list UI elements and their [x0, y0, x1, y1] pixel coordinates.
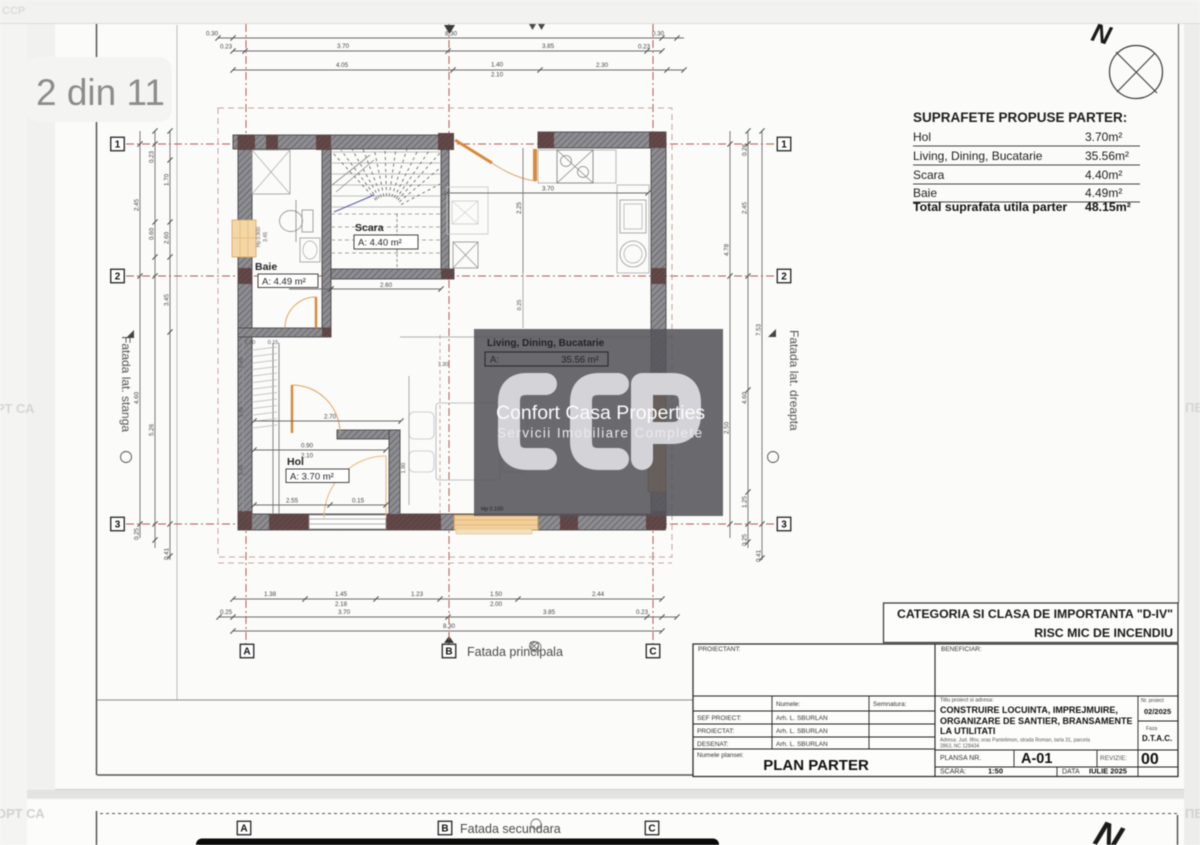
svg-text:Baie: Baie [255, 261, 277, 273]
svg-text:3.45: 3.45 [263, 232, 269, 242]
svg-text:3.70: 3.70 [338, 609, 351, 616]
svg-text:ПЕ: ПЕ [1185, 400, 1200, 415]
svg-text:SEF PROIECT:: SEF PROIECT: [697, 715, 742, 722]
svg-text:3.70: 3.70 [337, 43, 350, 50]
svg-text:C: C [648, 824, 655, 835]
svg-text:Hol: Hol [287, 456, 304, 468]
svg-text:4.49m²: 4.49m² [1085, 186, 1122, 200]
svg-text:A-01: A-01 [1021, 751, 1052, 767]
svg-text:0.23: 0.23 [638, 44, 651, 51]
svg-text:2: 2 [781, 272, 787, 283]
svg-text:A: A [240, 824, 247, 835]
svg-text:8.30: 8.30 [445, 31, 458, 38]
svg-text:0.23: 0.23 [220, 44, 233, 51]
svg-text:SCARA:: SCARA: [940, 769, 966, 776]
svg-text:2.18: 2.18 [335, 601, 348, 608]
svg-text:Hol: Hol [913, 130, 931, 144]
svg-text:A:: A: [490, 355, 499, 366]
svg-text:1.85: 1.85 [239, 407, 245, 418]
svg-text:Numele plansei:: Numele plansei: [697, 752, 744, 759]
svg-text:1: 1 [781, 140, 787, 151]
svg-text:Scara: Scara [355, 222, 384, 234]
svg-text:4.78: 4.78 [724, 243, 731, 256]
svg-text:0.15: 0.15 [352, 498, 365, 505]
svg-text:2863, NC 128434: 2863, NC 128434 [940, 744, 979, 750]
svg-text:0.30: 0.30 [652, 31, 665, 38]
svg-text:Living, Dining, Bucatarie: Living, Dining, Bucatarie [913, 149, 1043, 163]
svg-text:RISC MIC DE INCENDIU: RISC MIC DE INCENDIU [1034, 626, 1173, 640]
svg-text:CCP: CCP [2, 5, 25, 17]
svg-text:2.00: 2.00 [490, 601, 503, 608]
svg-text:CONSTRUIRE LOCUINTA, IMPREJMUI: CONSTRUIRE LOCUINTA, IMPREJMUIRE, [940, 705, 1118, 715]
svg-text:IULIE 2025: IULIE 2025 [1089, 767, 1127, 776]
svg-text:1.30: 1.30 [245, 340, 256, 346]
svg-text:LA UTILITATI: LA UTILITATI [940, 726, 995, 736]
svg-text:2.10: 2.10 [491, 72, 504, 79]
svg-text:REVIZIE:: REVIZIE: [1100, 755, 1127, 762]
svg-text:1.80: 1.80 [401, 463, 407, 474]
svg-text:00: 00 [1141, 751, 1159, 768]
svg-text:Hp 0.900: Hp 0.900 [256, 227, 262, 248]
svg-text:Arh. L. SBURLAN: Arh. L. SBURLAN [776, 728, 828, 735]
svg-text:ОРТ СА: ОРТ СА [0, 806, 45, 821]
svg-text:0.26: 0.26 [742, 143, 749, 156]
svg-text:PLAN PARTER: PLAN PARTER [763, 757, 869, 774]
svg-text:1.23: 1.23 [411, 591, 424, 598]
svg-text:02/2025: 02/2025 [1144, 707, 1171, 716]
svg-text:2.45: 2.45 [134, 198, 141, 211]
svg-text:3.85: 3.85 [542, 43, 555, 50]
svg-text:A: 3.70 m²: A: 3.70 m² [290, 472, 334, 483]
svg-text:Faza: Faza [1146, 726, 1157, 732]
svg-text:3.70: 3.70 [542, 186, 555, 193]
svg-text:A: A [243, 647, 250, 658]
svg-text:A: 4.49 m²: A: 4.49 m² [262, 277, 306, 288]
svg-text:SUPRAFETE PROPUSE PARTER:: SUPRAFETE PROPUSE PARTER: [913, 110, 1127, 125]
svg-text:2.60: 2.60 [380, 282, 393, 289]
svg-text:4.60: 4.60 [134, 391, 141, 404]
svg-text:РТ СА: РТ СА [0, 401, 35, 416]
svg-text:Confort Casa Properties: Confort Casa Properties [496, 402, 705, 424]
svg-text:Semnatura:: Semnatura: [873, 701, 907, 708]
svg-text:B: B [441, 824, 448, 835]
svg-text:3.45: 3.45 [164, 293, 171, 306]
svg-text:7.53: 7.53 [756, 323, 763, 336]
svg-text:4.05: 4.05 [336, 62, 349, 69]
svg-text:Titlu proiect si adresa:: Titlu proiect si adresa: [940, 698, 994, 704]
svg-text:2.44: 2.44 [592, 591, 605, 598]
svg-text:1: 1 [115, 140, 121, 151]
svg-text:1.70: 1.70 [164, 173, 171, 186]
svg-text:ПЕ: ПЕ [1185, 806, 1200, 821]
svg-text:0.25: 0.25 [742, 533, 749, 546]
svg-text:2.55: 2.55 [286, 498, 299, 505]
svg-text:0.30: 0.30 [206, 31, 219, 38]
svg-text:1.50: 1.50 [490, 591, 503, 598]
svg-text:0.25: 0.25 [220, 609, 233, 616]
svg-text:0.23: 0.23 [149, 150, 156, 163]
svg-text:2.25: 2.25 [517, 202, 523, 214]
svg-text:0.25: 0.25 [517, 300, 523, 311]
svg-text:2 din 11: 2 din 11 [36, 72, 165, 113]
svg-text:35.56 m²: 35.56 m² [561, 355, 599, 366]
svg-text:Fatada lat. dreapta: Fatada lat. dreapta [787, 330, 801, 431]
svg-text:0.90: 0.90 [301, 443, 314, 450]
svg-text:BENEFICIAR:: BENEFICIAR: [941, 646, 982, 653]
svg-text:48.15m²: 48.15m² [1085, 200, 1131, 214]
svg-text:DESENAT:: DESENAT: [697, 741, 728, 748]
svg-text:0.41: 0.41 [756, 549, 763, 562]
svg-text:Arh. L. SBURLAN: Arh. L. SBURLAN [776, 715, 828, 722]
svg-text:2.50: 2.50 [724, 421, 731, 434]
svg-text:1.45: 1.45 [335, 591, 348, 598]
svg-text:4.60: 4.60 [742, 391, 749, 404]
svg-text:Fatada secundara: Fatada secundara [460, 822, 561, 836]
svg-text:Fatada principala: Fatada principala [467, 645, 563, 659]
svg-text:3: 3 [115, 520, 121, 531]
svg-text:3.70m²: 3.70m² [1085, 130, 1122, 144]
svg-text:1.25: 1.25 [742, 495, 749, 508]
svg-text:B: B [445, 647, 452, 658]
svg-text:D.T.A.C.: D.T.A.C. [1142, 734, 1172, 743]
svg-text:0.23: 0.23 [636, 609, 649, 616]
svg-text:2.30: 2.30 [596, 62, 609, 69]
svg-text:1.40: 1.40 [491, 62, 504, 69]
svg-text:2: 2 [115, 272, 121, 283]
svg-text:Nr. proiect: Nr. proiect [1141, 698, 1164, 704]
svg-text:3: 3 [781, 520, 787, 531]
svg-text:Numele:: Numele: [776, 701, 800, 708]
svg-text:ORGANIZARE DE SANTIER, BRANSAM: ORGANIZARE DE SANTIER, BRANSAMENTE [940, 716, 1133, 726]
svg-text:4.40m²: 4.40m² [1085, 168, 1122, 182]
svg-text:35.56m²: 35.56m² [1085, 149, 1129, 163]
svg-text:3.85: 3.85 [543, 609, 556, 616]
svg-text:2.60: 2.60 [164, 231, 171, 244]
svg-text:Total suprafata utila parter: Total suprafata utila parter [913, 200, 1067, 214]
svg-text:Baie: Baie [913, 186, 937, 200]
svg-text:DATA: DATA [1062, 769, 1080, 776]
svg-text:0.25: 0.25 [134, 527, 141, 540]
svg-text:1:50: 1:50 [988, 767, 1003, 776]
svg-text:Hp 0.100: Hp 0.100 [481, 507, 503, 513]
svg-text:1.38: 1.38 [264, 591, 277, 598]
svg-text:C: C [649, 647, 656, 658]
svg-text:7.30: 7.30 [438, 362, 449, 368]
svg-text:2.70: 2.70 [324, 414, 337, 421]
svg-text:0.60: 0.60 [149, 227, 156, 240]
svg-text:PROIECTAT:: PROIECTAT: [697, 728, 735, 735]
svg-text:Living, Dining, Bucatarie: Living, Dining, Bucatarie [487, 338, 605, 349]
svg-text:PLANSA NR.: PLANSA NR. [940, 755, 981, 762]
svg-text:0.15: 0.15 [268, 340, 279, 346]
svg-text:Fatada lat. stanga: Fatada lat. stanga [119, 336, 133, 432]
svg-text:0.41: 0.41 [164, 547, 171, 560]
svg-text:1.45: 1.45 [239, 358, 245, 369]
svg-text:PROIECTANT:: PROIECTANT: [698, 646, 741, 653]
svg-text:Servicii Imobiliare Complete: Servicii Imobiliare Complete [497, 426, 704, 441]
svg-text:Scara: Scara [913, 168, 945, 182]
svg-text:1.45: 1.45 [239, 465, 245, 476]
svg-text:CATEGORIA SI CLASA DE IMPORTAN: CATEGORIA SI CLASA DE IMPORTANTA "D-IV" [897, 607, 1173, 621]
svg-text:Arh. L. SBURLAN: Arh. L. SBURLAN [776, 741, 828, 748]
svg-text:A: 4.40 m²: A: 4.40 m² [358, 238, 402, 249]
svg-text:5.26: 5.26 [149, 423, 156, 436]
svg-text:2.45: 2.45 [742, 201, 749, 214]
